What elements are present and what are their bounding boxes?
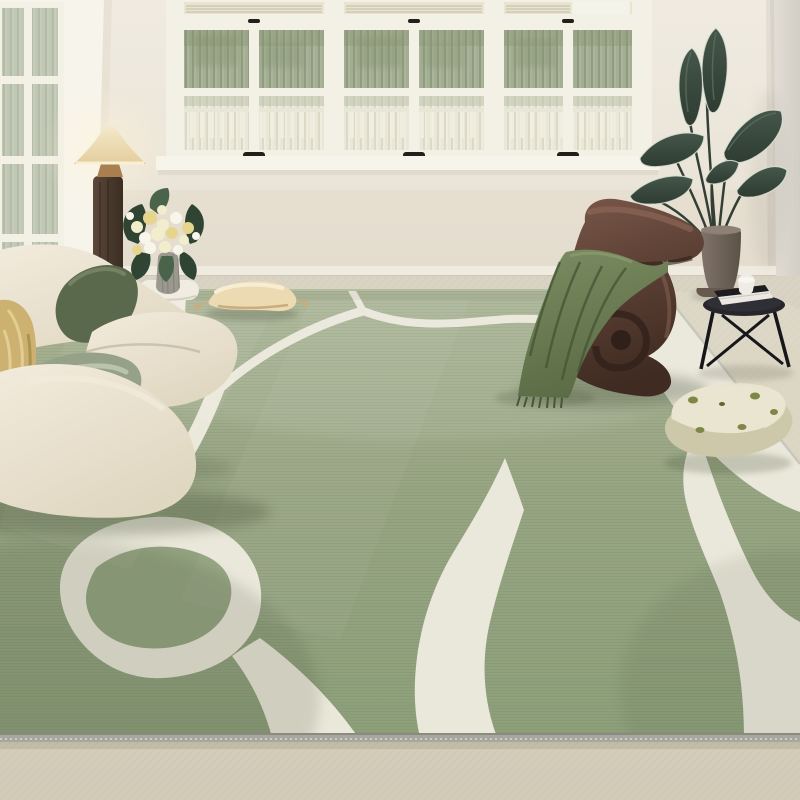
lamp-neck bbox=[97, 164, 123, 177]
horizontal-muntin bbox=[2, 234, 58, 242]
tassel-left bbox=[194, 304, 200, 310]
tree-blob bbox=[194, 36, 238, 66]
tree-blob bbox=[262, 42, 304, 68]
transom-latch bbox=[562, 19, 574, 23]
transom-latch bbox=[408, 19, 420, 23]
tassel-right bbox=[303, 301, 309, 307]
vertical-muntin bbox=[24, 8, 32, 256]
tree-blob bbox=[424, 44, 464, 68]
sill-shadow bbox=[158, 170, 658, 175]
horizontal-muntin bbox=[504, 88, 632, 96]
scene-canvas bbox=[0, 0, 800, 800]
horizontal-muntin bbox=[184, 88, 324, 96]
bright-pane bbox=[572, 2, 630, 14]
rug-front-shadow bbox=[0, 742, 800, 749]
tree-blob bbox=[356, 38, 402, 68]
cup-rim bbox=[738, 277, 754, 283]
horizontal-muntin bbox=[344, 88, 484, 96]
tree-blob bbox=[514, 40, 556, 68]
chair-roll-center bbox=[611, 330, 631, 350]
transom-latch bbox=[248, 19, 260, 23]
window-sill bbox=[156, 156, 660, 170]
horizontal-muntin bbox=[2, 76, 58, 84]
living-room-photo bbox=[0, 0, 800, 800]
pot-rim bbox=[701, 226, 741, 235]
table-shadow bbox=[698, 365, 794, 381]
plant-pot bbox=[701, 228, 741, 289]
back-window bbox=[156, 0, 660, 175]
